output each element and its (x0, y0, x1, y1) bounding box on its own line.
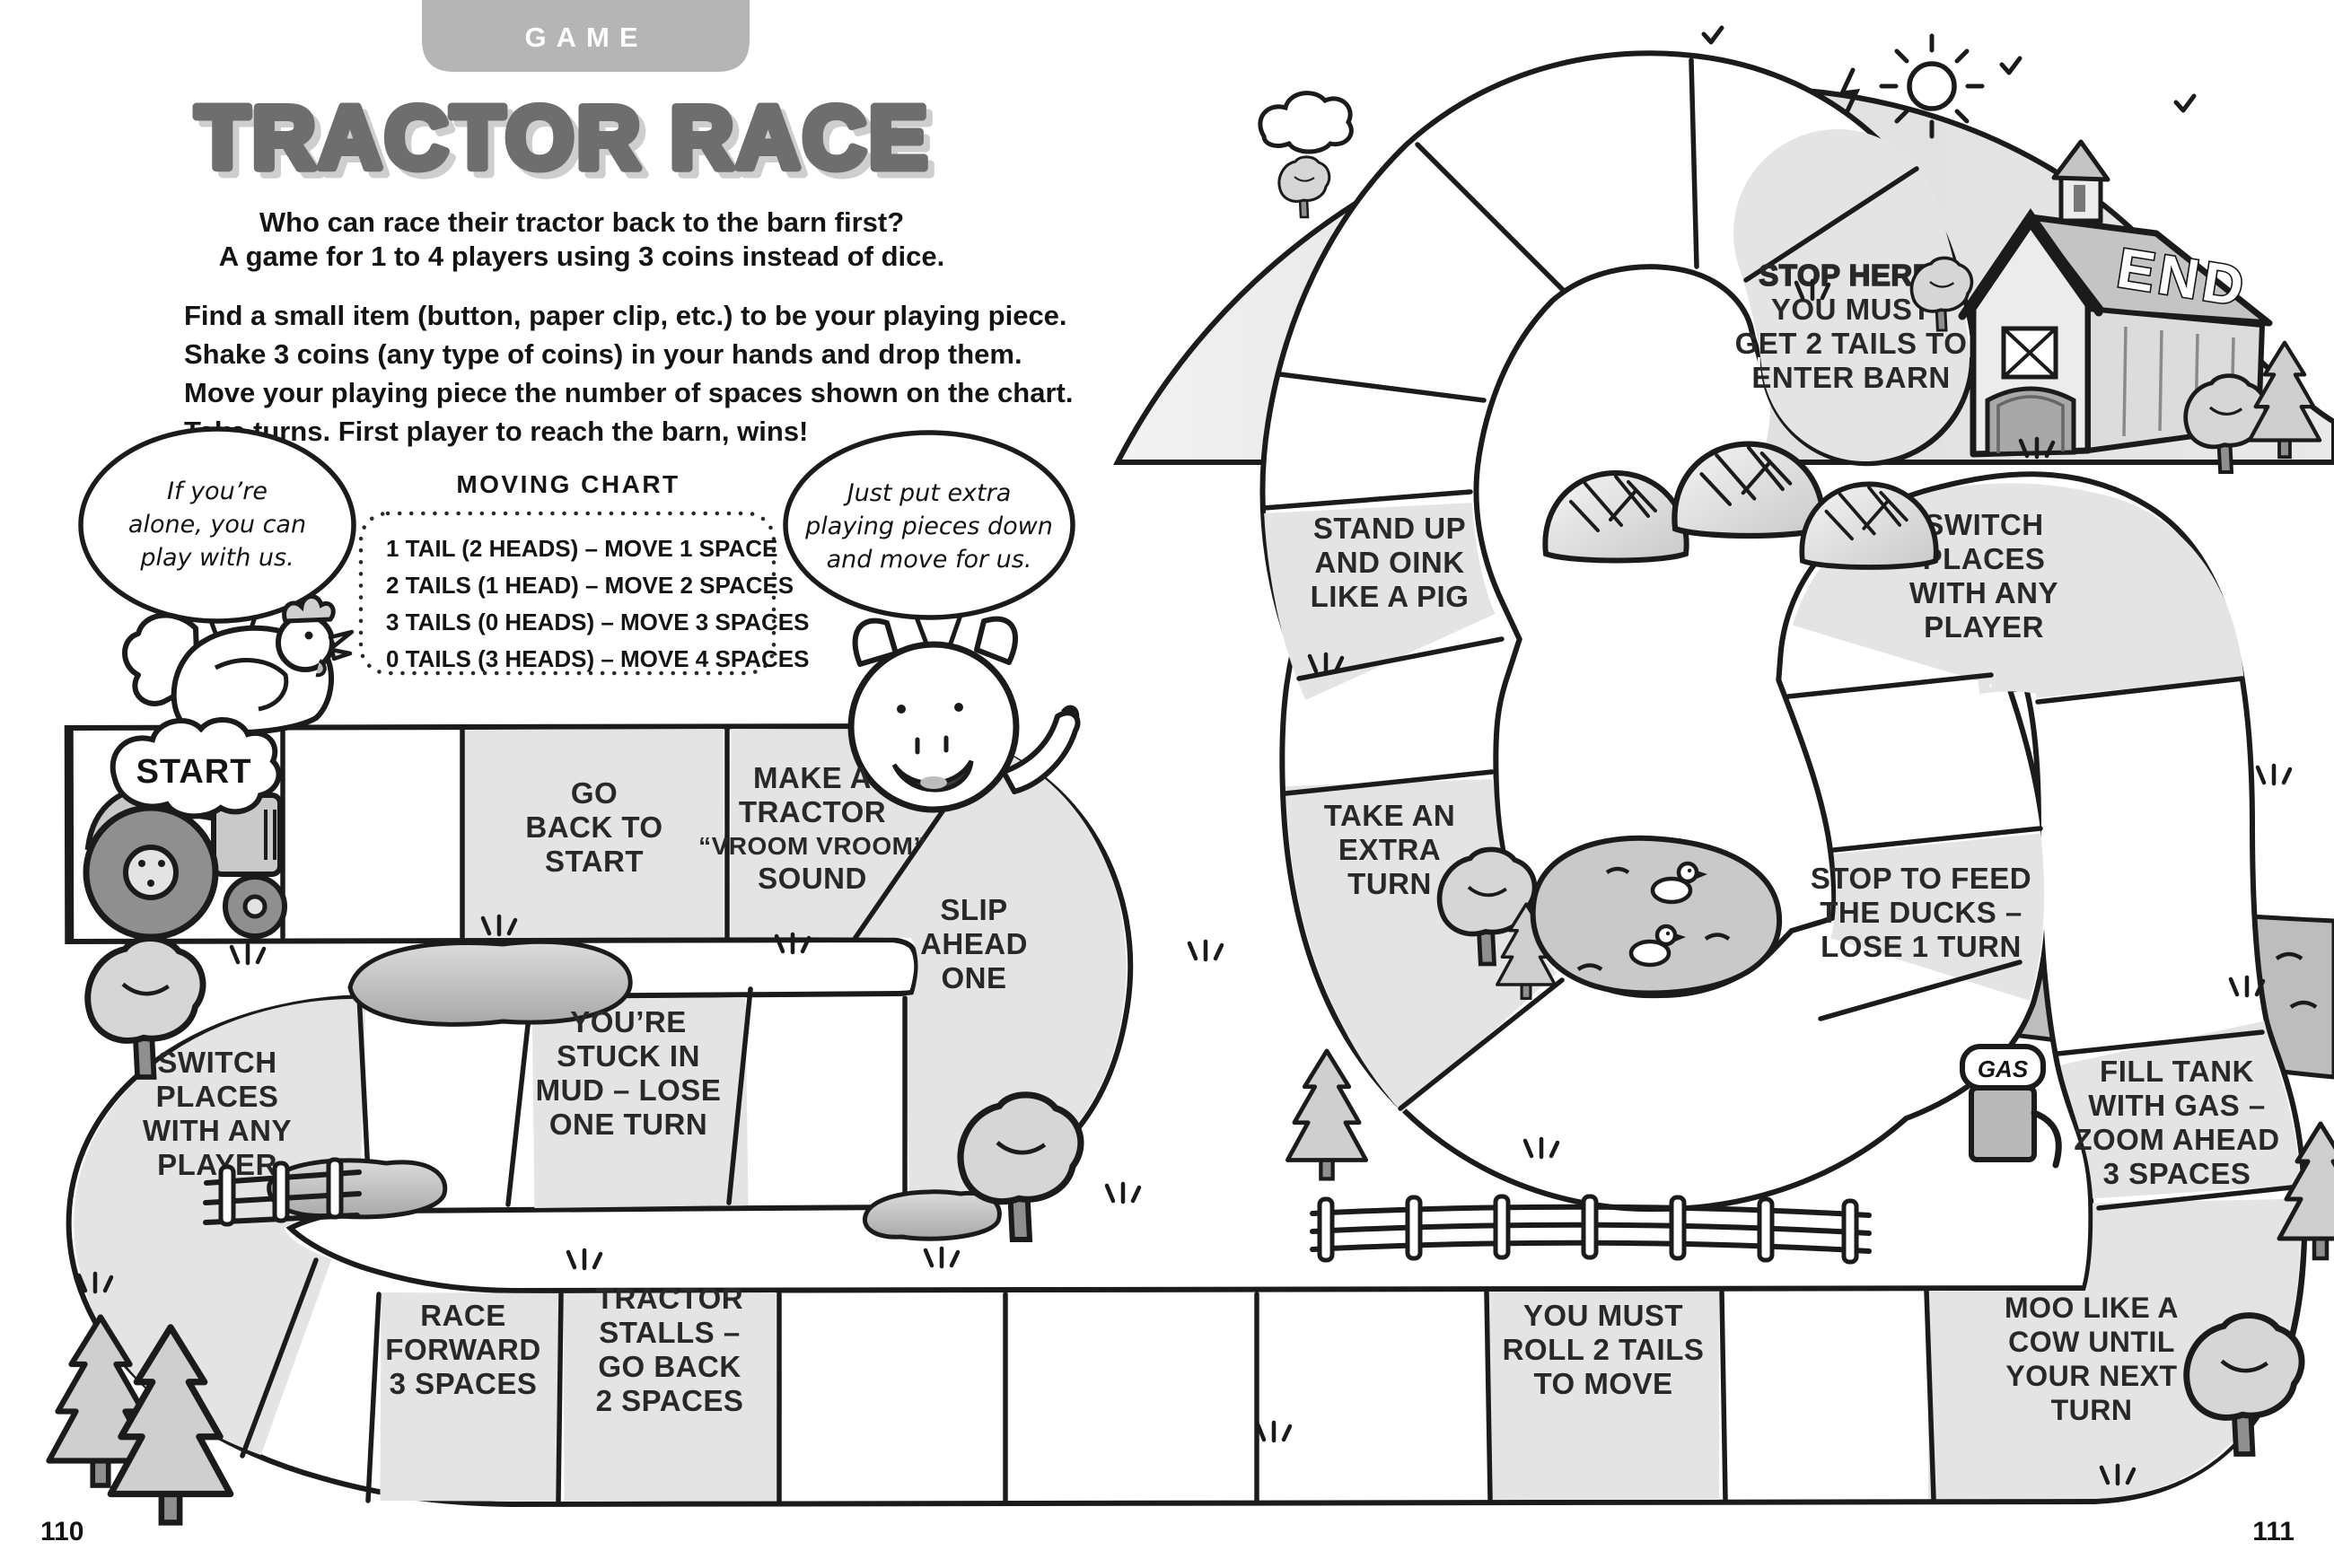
moving-chart-row-3: 3 TAILS (0 HEADS) – MOVE 3 SPACES (386, 609, 809, 635)
svg-text:WITH ANY: WITH ANY (143, 1114, 292, 1147)
instruction-line-3: Move your playing piece the number of sp… (184, 377, 1073, 408)
svg-text:BACK TO: BACK TO (525, 810, 662, 844)
svg-text:GET 2 TAILS TO: GET 2 TAILS TO (1735, 327, 1968, 360)
intro-line-2: A game for 1 to 4 players using 3 coins … (219, 241, 945, 272)
svg-text:GO: GO (571, 776, 618, 810)
svg-text:MUD – LOSE: MUD – LOSE (536, 1073, 722, 1107)
svg-text:PLAYER: PLAYER (157, 1148, 277, 1181)
svg-text:FORWARD: FORWARD (385, 1333, 540, 1366)
space-oink-like-pig: STAND UP AND OINK LIKE A PIG (1311, 512, 1470, 613)
svg-text:3 SPACES: 3 SPACES (390, 1367, 538, 1400)
svg-text:MOO LIKE A: MOO LIKE A (2005, 1292, 2179, 1324)
svg-text:“VROOM VROOM”: “VROOM VROOM” (698, 832, 926, 860)
svg-text:PLACES: PLACES (156, 1080, 279, 1113)
pig-bubble-line-3: and move for us. (827, 546, 1032, 574)
svg-text:START: START (545, 845, 644, 878)
svg-text:YOU MUST: YOU MUST (1523, 1299, 1683, 1332)
tractor-illustration: START (86, 720, 285, 937)
moving-chart-row-4: 0 TAILS (3 HEADS) – MOVE 4 SPACES (386, 645, 809, 672)
svg-text:TRACTOR: TRACTOR (596, 1282, 743, 1315)
svg-text:STOP TO FEED: STOP TO FEED (1811, 862, 2031, 895)
svg-text:ROLL 2 TAILS: ROLL 2 TAILS (1503, 1333, 1705, 1366)
moving-chart-title: MOVING CHART (456, 470, 680, 498)
svg-text:PLAYER: PLAYER (1924, 610, 2044, 644)
board-illustration: GAME TRACTOR RACE TRACTOR RACE Who can r… (0, 0, 2334, 1568)
chicken-bubble-line-2: alone, you can (128, 511, 306, 539)
svg-text:ONE TURN: ONE TURN (549, 1108, 707, 1141)
instruction-line-2: Shake 3 coins (any type of coins) in you… (184, 338, 1022, 370)
svg-text:EXTRA: EXTRA (1338, 833, 1441, 866)
moving-chart-row-2: 2 TAILS (1 HEAD) – MOVE 2 SPACES (386, 572, 794, 599)
svg-text:RACE: RACE (420, 1299, 506, 1332)
space-fill-tank: FILL TANK WITH GAS – ZOOM AHEAD 3 SPACES (2074, 1055, 2279, 1190)
svg-text:WITH ANY: WITH ANY (1909, 576, 2058, 609)
chicken-bubble-line-3: play with us. (139, 544, 294, 572)
svg-text:TAKE AN: TAKE AN (1324, 799, 1456, 832)
svg-text:TRACTOR: TRACTOR (739, 795, 886, 828)
pig-bubble-line-1: Just put extra (843, 479, 1012, 507)
book-spread-tractor-race: GAME TRACTOR RACE TRACTOR RACE Who can r… (0, 0, 2334, 1568)
svg-text:THE DUCKS –: THE DUCKS – (1820, 896, 2023, 929)
svg-text:2 SPACES: 2 SPACES (596, 1384, 744, 1417)
svg-text:GO BACK: GO BACK (598, 1350, 741, 1383)
svg-text:AND OINK: AND OINK (1314, 546, 1464, 579)
svg-text:MAKE A: MAKE A (753, 761, 872, 794)
svg-text:STALLS –: STALLS – (599, 1316, 740, 1349)
svg-text:SOUND: SOUND (758, 862, 867, 895)
page-number-left: 110 (40, 1517, 83, 1546)
svg-text:AHEAD: AHEAD (920, 927, 1028, 960)
svg-text:ONE: ONE (941, 961, 1006, 994)
sun-icon (1882, 36, 1982, 136)
svg-text:COW UNTIL: COW UNTIL (2008, 1326, 2175, 1358)
svg-text:WITH GAS –: WITH GAS – (2088, 1089, 2266, 1122)
svg-text:YOU’RE: YOU’RE (570, 1005, 687, 1038)
space-feed-ducks: STOP TO FEED THE DUCKS – LOSE 1 TURN (1811, 862, 2031, 963)
svg-text:ZOOM AHEAD: ZOOM AHEAD (2074, 1123, 2279, 1156)
intro-line-1: Who can race their tractor back to the b… (259, 206, 904, 238)
svg-text:YOU MUST: YOU MUST (1771, 293, 1931, 326)
game-badge-label: GAME (525, 22, 648, 53)
moving-chart-row-1: 1 TAIL (2 HEADS) – MOVE 1 SPACE (386, 535, 777, 562)
pig-bubble-line-2: playing pieces down (804, 512, 1053, 540)
page-number-right: 111 (2252, 1517, 2295, 1546)
svg-text:TURN: TURN (1347, 867, 1432, 900)
svg-text:PLACES: PLACES (1923, 542, 2046, 575)
svg-text:STUCK IN: STUCK IN (557, 1039, 700, 1073)
svg-text:YOUR NEXT: YOUR NEXT (2005, 1360, 2177, 1392)
space-switch-places-left: SWITCH PLACES WITH ANY PLAYER (143, 1046, 292, 1181)
svg-text:SWITCH: SWITCH (157, 1046, 276, 1079)
page-title: TRACTOR RACE (196, 88, 930, 187)
svg-text:SLIP: SLIP (940, 893, 1007, 926)
svg-text:LOSE 1 TURN: LOSE 1 TURN (1821, 930, 2022, 963)
svg-text:STAND UP: STAND UP (1313, 512, 1466, 545)
svg-text:LIKE A PIG: LIKE A PIG (1311, 580, 1470, 613)
duck-pond (1533, 838, 1779, 994)
space-tractor-stalls: TRACTOR STALLS – GO BACK 2 SPACES (596, 1282, 744, 1417)
svg-text:TO MOVE: TO MOVE (1533, 1367, 1672, 1400)
svg-text:TURN: TURN (2051, 1394, 2133, 1426)
start-space-label: START (136, 753, 252, 791)
svg-text:ENTER BARN: ENTER BARN (1751, 361, 1950, 394)
fence-left (206, 1160, 359, 1224)
instruction-line-1: Find a small item (button, paper clip, e… (184, 300, 1067, 331)
svg-text:SWITCH: SWITCH (1924, 508, 2043, 541)
svg-text:FILL TANK: FILL TANK (2100, 1055, 2254, 1088)
gas-pump-label: GAS (1978, 1056, 2029, 1082)
chicken-bubble-line-1: If you’re (167, 477, 268, 505)
svg-text:3 SPACES: 3 SPACES (2103, 1157, 2251, 1190)
